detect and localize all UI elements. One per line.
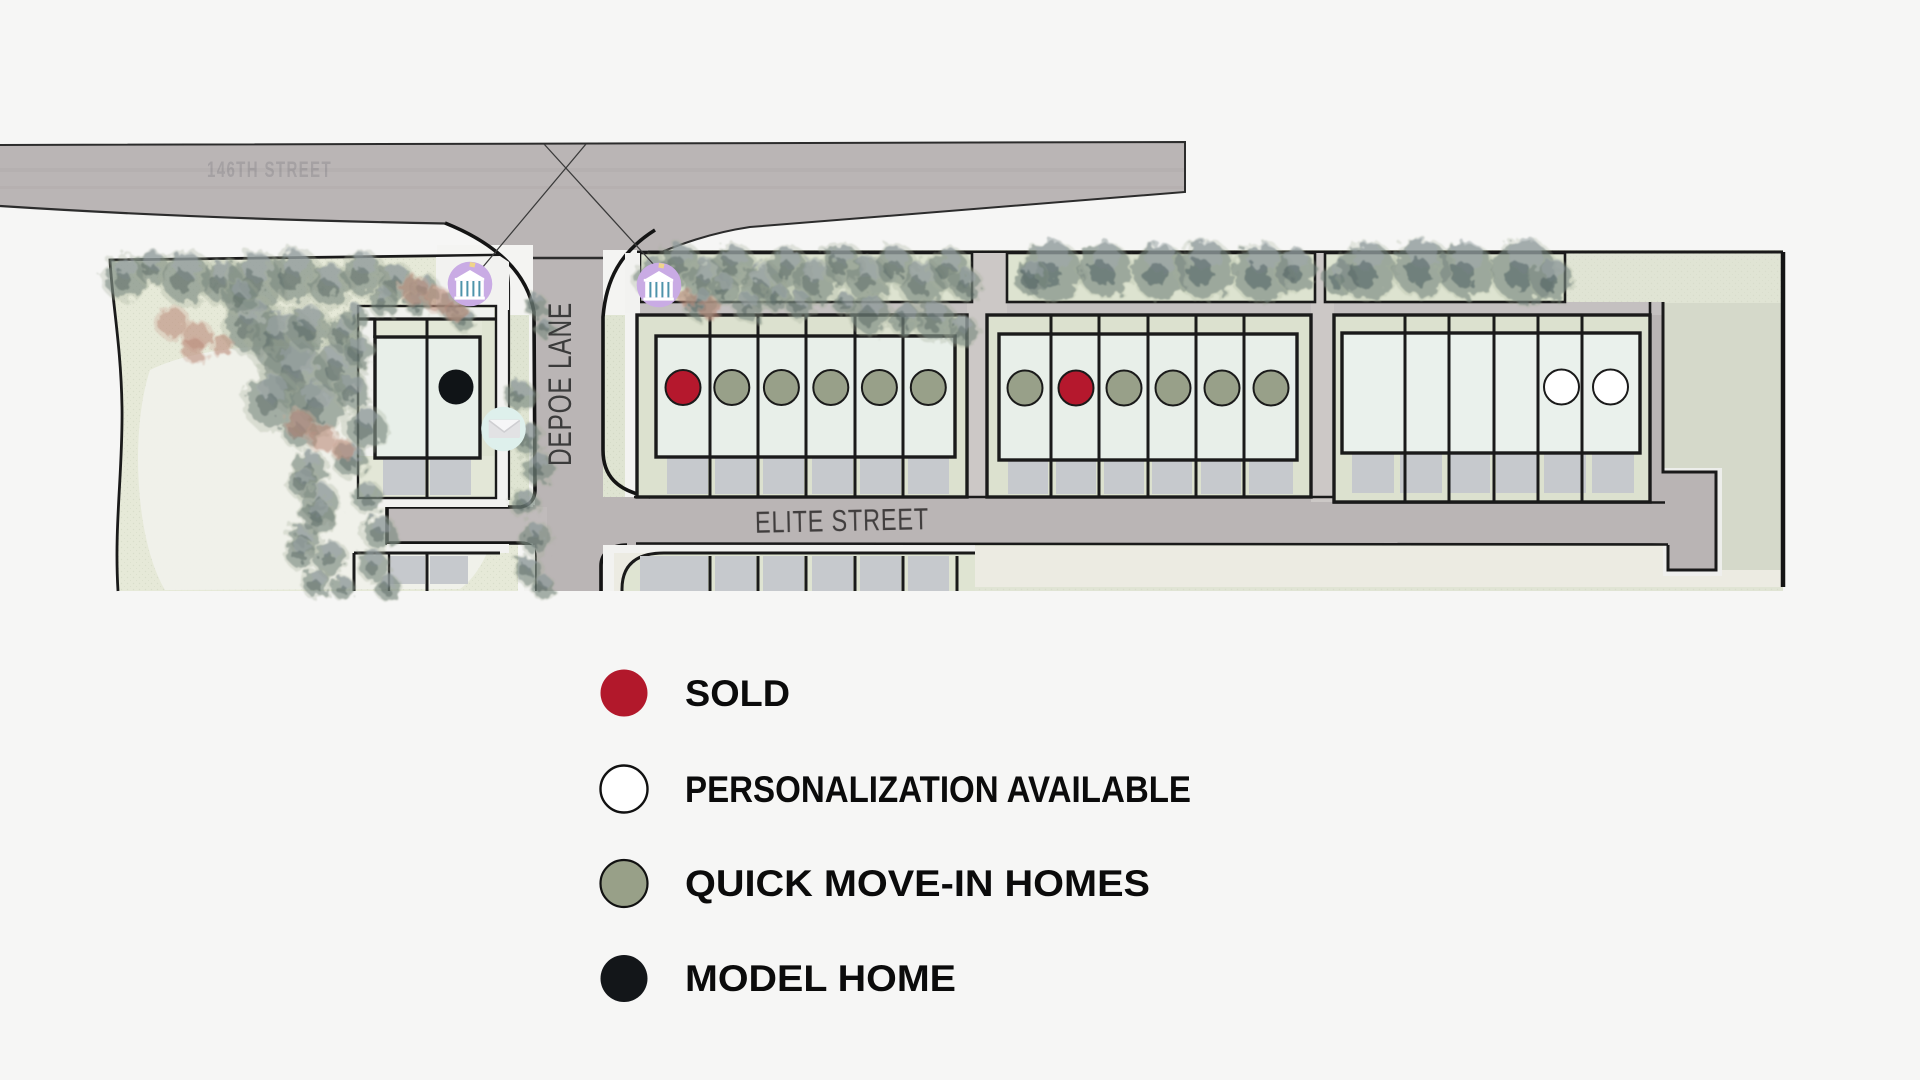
svg-text:PERSONALIZATION AVAILABLE: PERSONALIZATION AVAILABLE: [685, 769, 1191, 810]
svg-text:ELITE STREET: ELITE STREET: [755, 501, 930, 540]
svg-text:DEPOE LANE: DEPOE LANE: [542, 302, 578, 466]
svg-text:QUICK MOVE-IN HOMES: QUICK MOVE-IN HOMES: [685, 863, 1150, 904]
svg-text:146TH STREET: 146TH STREET: [207, 157, 332, 182]
svg-text:MODEL HOME: MODEL HOME: [685, 958, 956, 999]
svg-text:SOLD: SOLD: [685, 673, 790, 714]
